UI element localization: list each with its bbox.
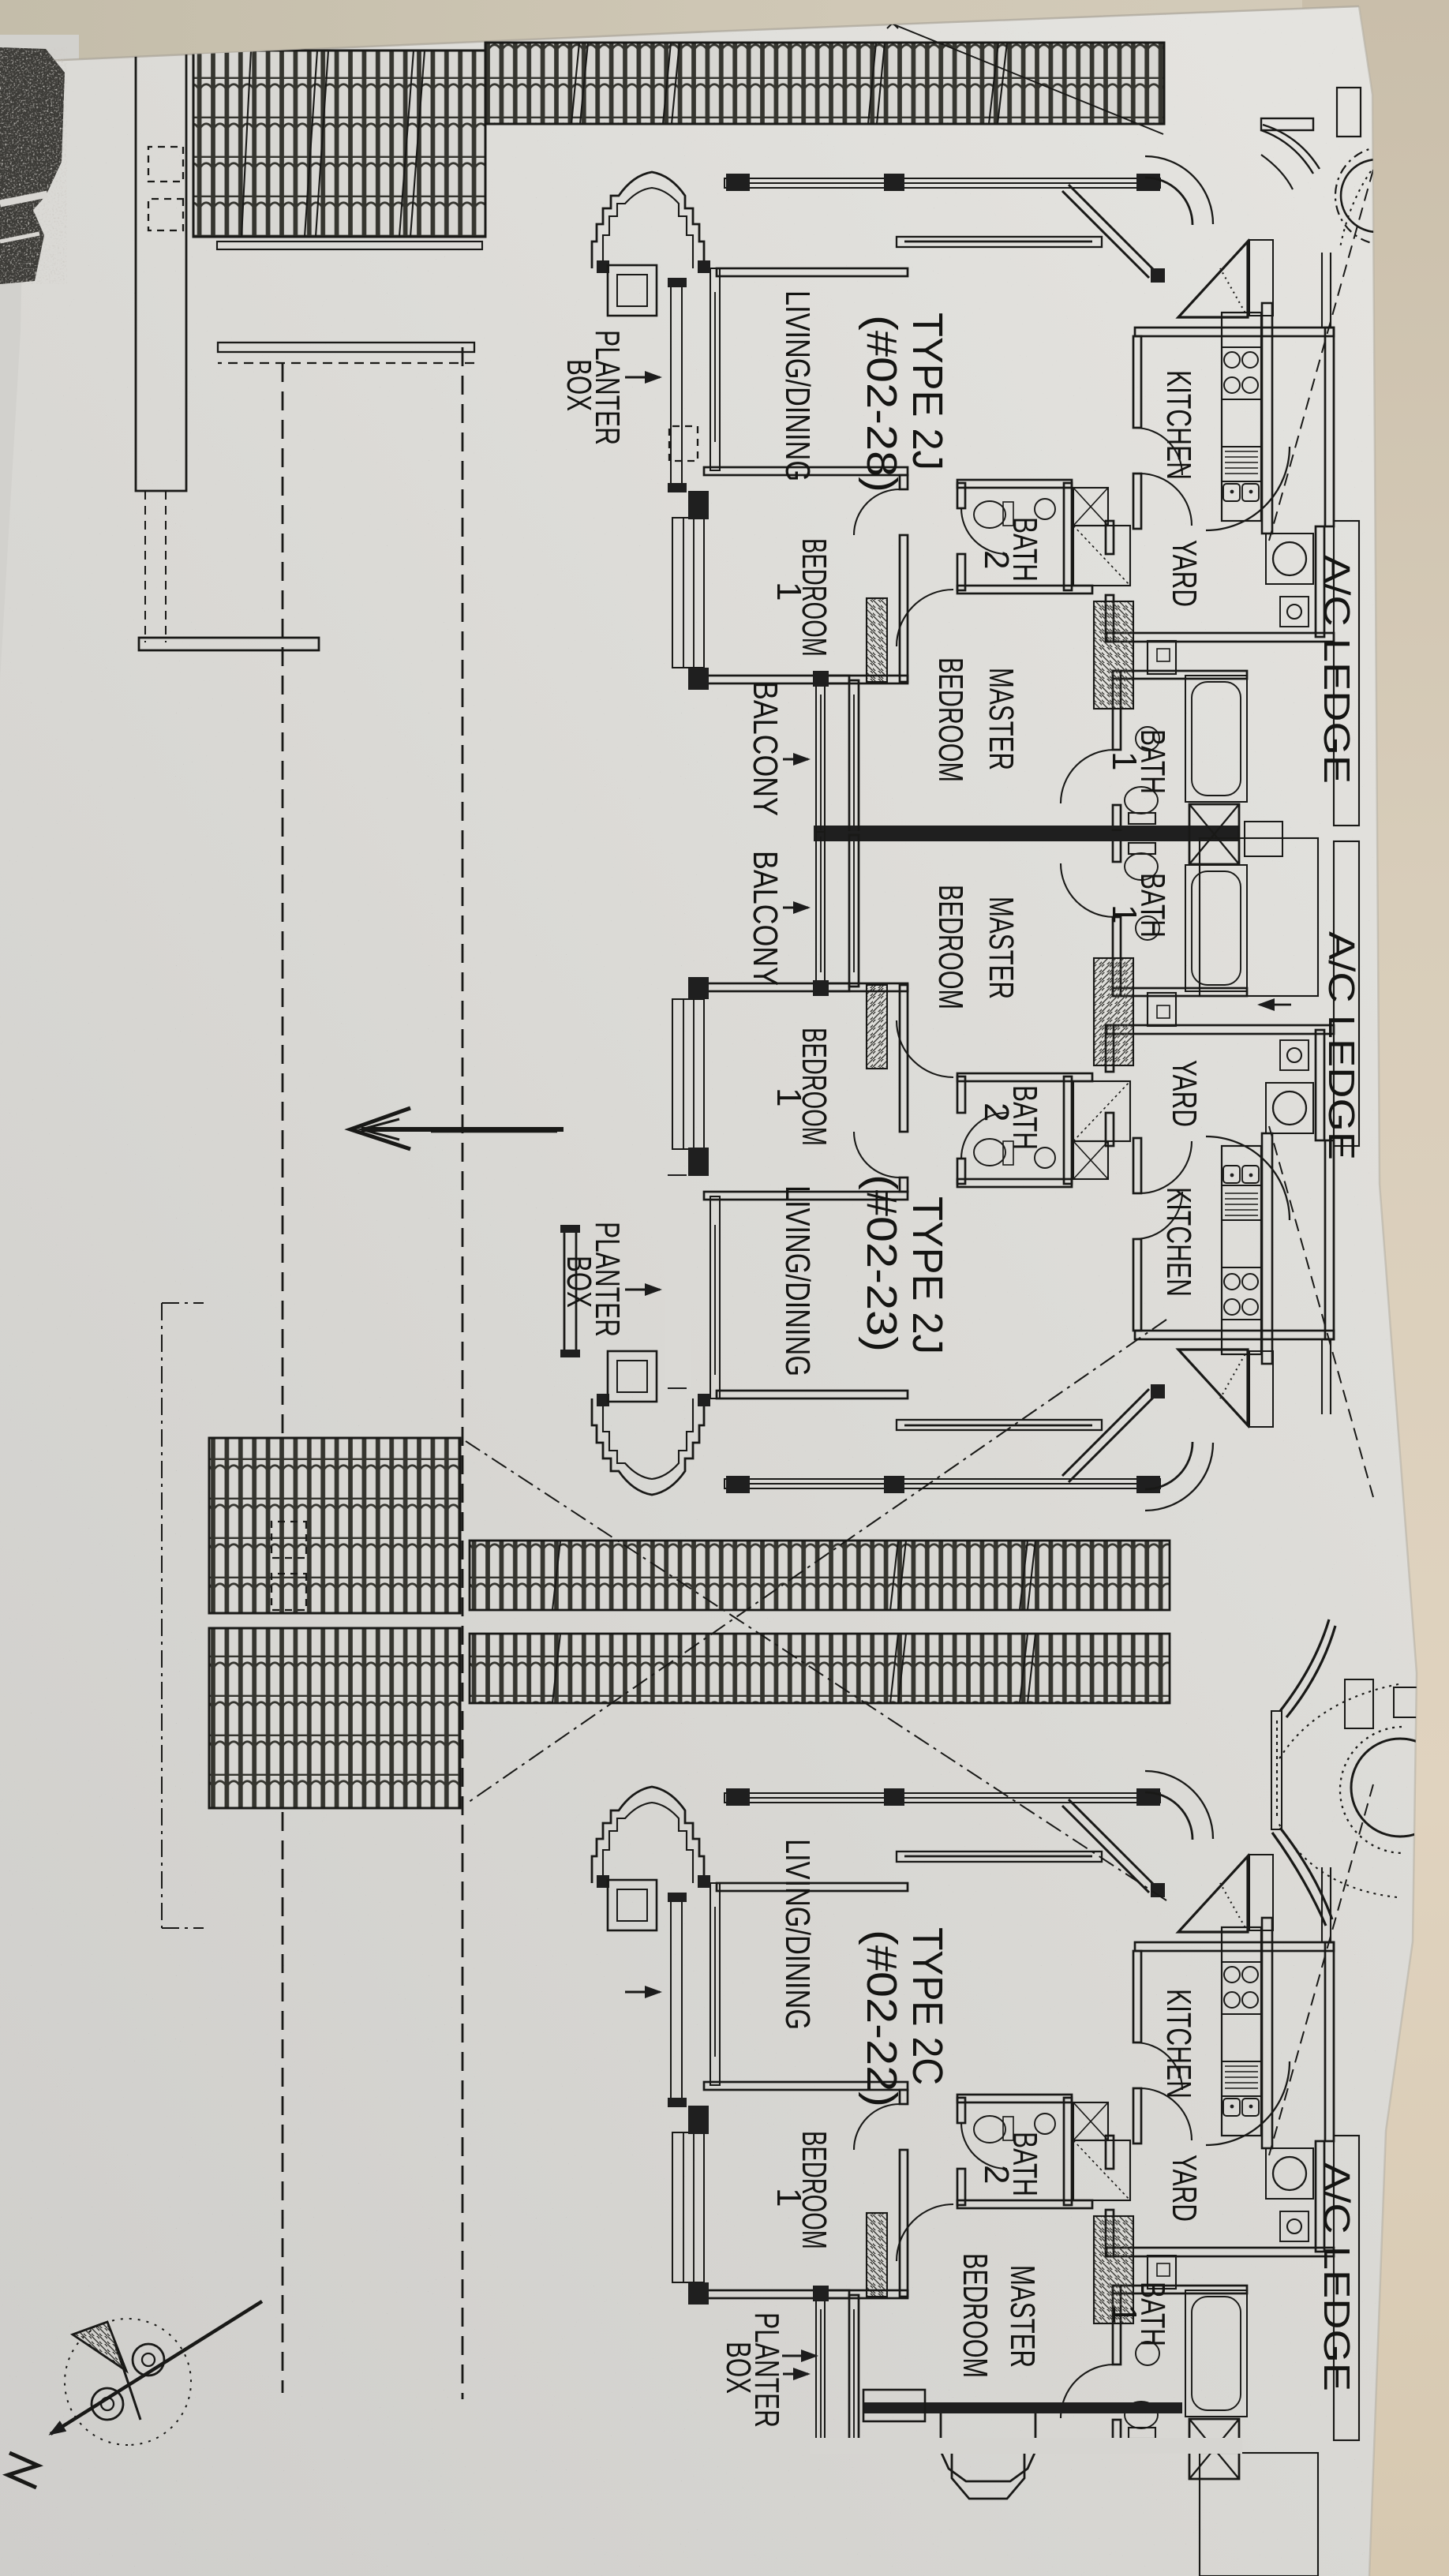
svg-text:TYPE 2J: TYPE 2J xyxy=(904,313,951,470)
svg-text:MASTER: MASTER xyxy=(982,668,1020,770)
svg-text:YARD: YARD xyxy=(1165,540,1204,607)
svg-text:TYPE 2J: TYPE 2J xyxy=(904,1196,951,1354)
svg-text:1: 1 xyxy=(1105,2305,1144,2323)
svg-text:KITCHEN: KITCHEN xyxy=(1159,1989,1198,2099)
svg-text:LIVING/DINING: LIVING/DINING xyxy=(778,290,817,481)
svg-text:LIVING/DINING: LIVING/DINING xyxy=(778,1185,817,1376)
svg-text:BALCONY: BALCONY xyxy=(746,681,784,816)
svg-text:BEDROOM: BEDROOM xyxy=(931,657,970,782)
svg-text:(#02-22): (#02-22) xyxy=(858,1930,905,2107)
svg-text:2: 2 xyxy=(977,1103,1016,1121)
svg-text:1: 1 xyxy=(1105,751,1144,770)
svg-text:BALCONY: BALCONY xyxy=(746,851,784,986)
svg-text:1: 1 xyxy=(1105,904,1144,923)
svg-text:A/C LEDGE: A/C LEDGE xyxy=(1316,555,1357,784)
svg-text:MASTER: MASTER xyxy=(1003,2265,1042,2368)
svg-text:BEDROOM: BEDROOM xyxy=(795,1028,833,1146)
svg-text:(#02-28): (#02-28) xyxy=(858,315,905,492)
svg-text:KITCHEN: KITCHEN xyxy=(1159,370,1198,480)
svg-text:BATH: BATH xyxy=(1005,2132,1044,2196)
svg-text:BATH: BATH xyxy=(1005,517,1044,582)
svg-text:A/C LEDGE: A/C LEDGE xyxy=(1316,2162,1357,2391)
svg-text:YARD: YARD xyxy=(1165,2155,1204,2222)
svg-text:A/C LEDGE: A/C LEDGE xyxy=(1321,931,1362,1160)
svg-text:BOX: BOX xyxy=(719,2342,758,2394)
svg-text:1: 1 xyxy=(769,2188,808,2207)
svg-text:BEDROOM: BEDROOM xyxy=(956,2253,994,2378)
svg-text:BOX: BOX xyxy=(560,1256,598,1308)
svg-text:LIVING/DINING: LIVING/DINING xyxy=(778,1839,817,2030)
svg-text:(#02-23): (#02-23) xyxy=(858,1174,905,1352)
svg-text:2: 2 xyxy=(977,2165,1016,2184)
svg-text:1: 1 xyxy=(769,582,808,601)
svg-text:KITCHEN: KITCHEN xyxy=(1159,1187,1198,1297)
svg-text:TYPE 2C: TYPE 2C xyxy=(904,1927,951,2085)
svg-text:YARD: YARD xyxy=(1165,1060,1204,1127)
svg-text:MASTER: MASTER xyxy=(982,897,1020,999)
svg-text:BOX: BOX xyxy=(560,359,598,411)
svg-text:BEDROOM: BEDROOM xyxy=(931,885,970,1009)
svg-text:1: 1 xyxy=(769,1088,808,1106)
svg-text:2: 2 xyxy=(977,550,1016,569)
